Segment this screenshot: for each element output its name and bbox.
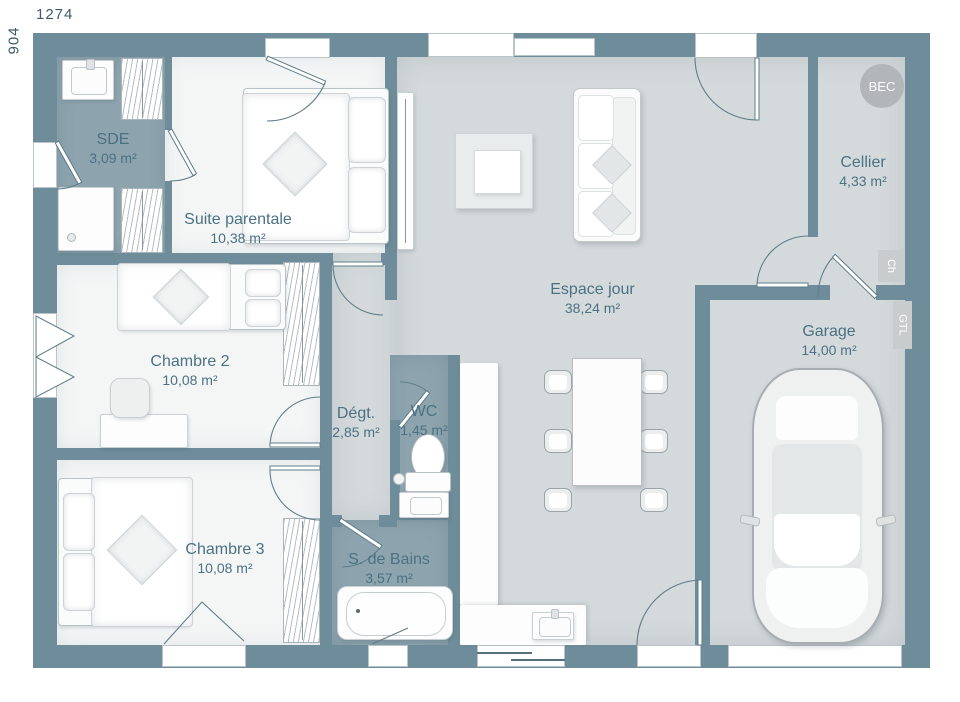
chambre3-wardrobe (283, 518, 320, 643)
room-label-sde: SDE 3,09 m² (57, 130, 169, 167)
door-opening-espace-bottom (637, 645, 701, 667)
room-name-sdb: S. de Bains (326, 550, 452, 570)
dimension-height: 904 (6, 17, 23, 65)
coffee-table (455, 133, 533, 209)
garage-door-opening (728, 645, 902, 667)
room-name-chambre3: Chambre 3 (125, 540, 325, 560)
room-label-espace: Espace jour 38,24 m² (500, 280, 685, 317)
room-area-wc: 1,45 m² (394, 422, 454, 439)
room-label-degt: Dégt. 2,85 m² (316, 404, 396, 441)
room-area-suite: 10,38 m² (128, 230, 348, 247)
sde-shower (58, 187, 114, 251)
window-sliding-espace (477, 645, 565, 667)
window-sdb (368, 645, 408, 667)
wc-sink (399, 492, 449, 518)
room-area-chambre3: 10,08 m² (125, 560, 325, 577)
bec-badge: BEC (860, 64, 904, 108)
room-area-sde: 3,09 m² (57, 150, 169, 167)
sde-wardrobe-top (121, 58, 163, 120)
wall-sdb-degt-a (332, 515, 342, 527)
dining-chair (640, 429, 668, 453)
room-label-chambre3: Chambre 3 10,08 m² (125, 540, 325, 577)
window-chambre2 (33, 313, 57, 398)
sde-sink (62, 60, 114, 100)
room-name-chambre2: Chambre 2 (90, 352, 290, 372)
bathtub (337, 586, 453, 640)
window-espace-2 (514, 38, 595, 56)
kitchen-sink (532, 612, 574, 640)
wall-chambres-degt-a (320, 253, 332, 400)
room-label-wc: WC 1,45 m² (394, 402, 454, 439)
room-area-garage: 14,00 m² (772, 342, 886, 359)
wall-cellier (808, 57, 818, 237)
dimension-width: 1274 (36, 6, 73, 23)
room-area-sdb: 3,57 m² (326, 570, 452, 587)
wc-toilet-tank (405, 472, 451, 492)
kitchen-counter-vertical (460, 363, 498, 605)
dining-chair (544, 488, 572, 512)
room-label-cellier: Cellier 4,33 m² (818, 153, 908, 190)
chambre2-bed (118, 264, 286, 330)
room-label-sdb: S. de Bains 3,57 m² (326, 550, 452, 587)
wall-garage-top-b (876, 285, 905, 300)
room-name-cellier: Cellier (818, 153, 908, 173)
floor-plan: 1274 904 (0, 0, 960, 702)
espace-sideboard (397, 92, 414, 250)
dining-chair (544, 370, 572, 394)
wall-suite-degt-b (381, 253, 397, 265)
room-area-degt: 2,85 m² (316, 424, 396, 441)
ch-tag: Ch (878, 250, 904, 282)
room-label-garage: Garage 14,00 m² (772, 322, 886, 359)
wc-flush-button (393, 473, 405, 485)
room-name-wc: WC (394, 402, 454, 422)
wall-sdb-degt-b (379, 515, 397, 527)
room-area-chambre2: 10,08 m² (90, 372, 290, 389)
room-area-cellier: 4,33 m² (818, 173, 908, 190)
ch-tag-label: Ch (885, 259, 897, 273)
room-label-chambre2: Chambre 2 10,08 m² (90, 352, 290, 389)
room-area-espace: 38,24 m² (500, 300, 685, 317)
room-name-sde: SDE (57, 130, 169, 150)
wall-sde-suite-top (165, 57, 172, 130)
room-name-espace: Espace jour (500, 280, 685, 300)
dining-chair (640, 488, 668, 512)
window-sde (33, 142, 57, 188)
window-espace-1 (428, 33, 514, 57)
room-label-suite: Suite parentale 10,38 m² (128, 210, 348, 247)
dining-chair (544, 429, 572, 453)
wall-garage-top-a (695, 285, 830, 300)
room-name-degt: Dégt. (316, 404, 396, 424)
gtl-tag-label: GTL (897, 314, 909, 335)
bec-badge-label: BEC (869, 79, 896, 94)
sofa (573, 88, 641, 242)
dining-chair (640, 370, 668, 394)
wall-chambres-degt-b (320, 445, 332, 470)
dining-table (572, 358, 642, 486)
room-name-suite: Suite parentale (128, 210, 348, 230)
chambre2-desk (100, 414, 188, 448)
room-name-garage: Garage (772, 322, 886, 342)
window-suite (265, 38, 330, 58)
window-chambre3 (162, 645, 246, 667)
car (752, 368, 884, 644)
wall-garage-left (695, 300, 710, 645)
gtl-tag: GTL (893, 301, 912, 349)
wall-ch2-ch3 (57, 448, 320, 460)
door-opening-entry-top (695, 33, 757, 58)
